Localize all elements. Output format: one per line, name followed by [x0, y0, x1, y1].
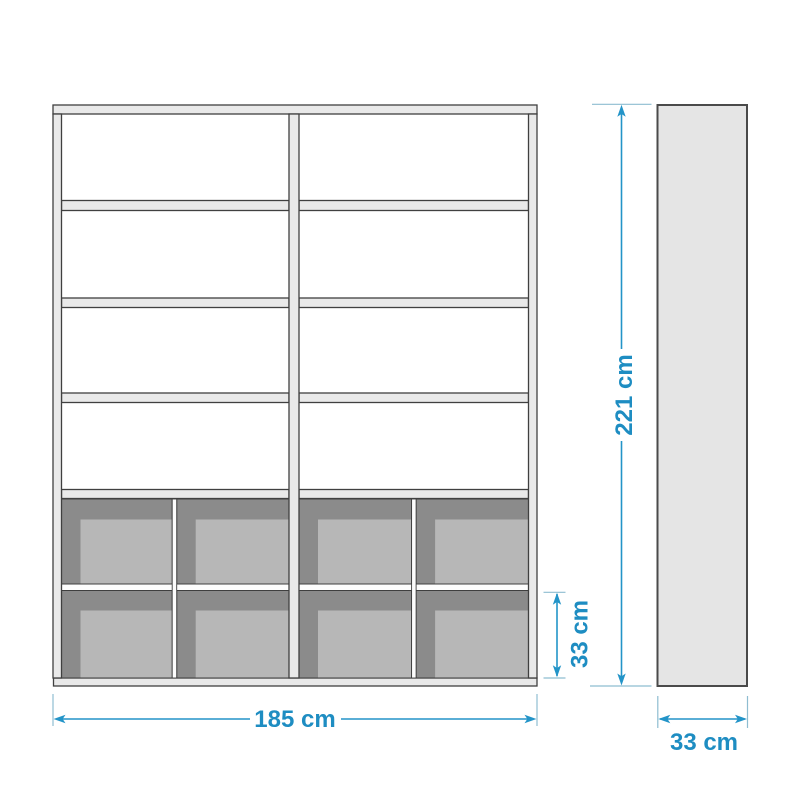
svg-text:33 cm: 33 cm: [670, 729, 738, 756]
svg-text:221 cm: 221 cm: [611, 354, 638, 435]
svg-text:185 cm: 185 cm: [254, 706, 335, 733]
svg-text:33 cm: 33 cm: [567, 600, 594, 668]
